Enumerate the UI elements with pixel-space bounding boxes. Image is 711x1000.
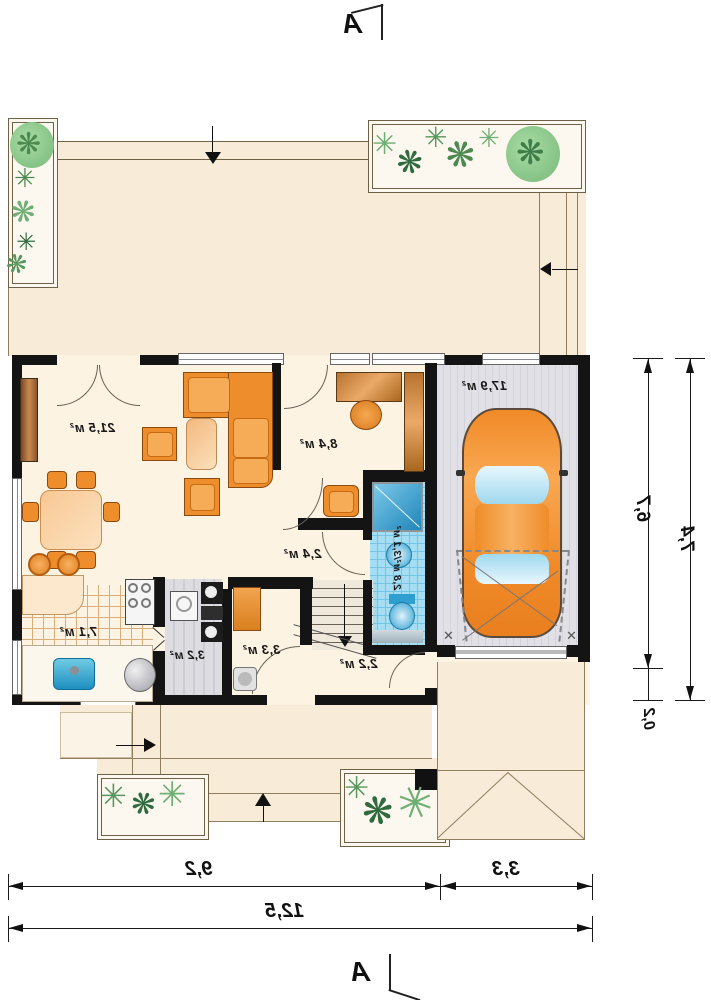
walkway-line [566,192,567,356]
entrance-arrow-line [263,804,264,822]
cross-mark-icon: ✕ [566,630,577,643]
boiler-dial-icon [205,586,217,598]
plant-icon: ✳ [372,130,397,160]
section-marker-bottom: A [350,956,370,988]
dining-chair [76,471,96,489]
plant-icon: ❋ [516,136,545,170]
dimension-arrow-icon [686,686,694,700]
side-path-arrow-line [116,745,144,746]
bar-counter [22,575,84,615]
dining-chair [22,502,39,522]
dimension-label-12-5: 12,5 [265,900,304,923]
canopy-roof-line [437,770,585,771]
dimension-arrow-icon [9,882,23,890]
plant-icon: ❋ [16,130,41,160]
walkway-arrow-icon [540,262,551,276]
porch-edge-line [60,758,432,759]
bar-stool [57,553,80,576]
section-line-bottom [389,954,391,990]
room-label-living: 21,5 м² [70,420,115,435]
dimension-label-0-2: 0,2 [639,699,657,739]
burner-icon [128,583,138,593]
dimension-arrow-icon [9,924,23,932]
floor-plan: A ❋ ✳ ❋ ✳ ❋ ✳ ❋ ✳ ❋ ✳ ❋ [0,0,711,1000]
room-label-entry: 2,2 м² [340,656,377,671]
wall-segment [363,580,372,645]
room-label-wc: 3,3 м² [243,642,280,657]
plant-icon: ✳ [14,166,36,192]
cross-mark-icon: ✕ [443,630,454,643]
water-heater [124,658,156,692]
car-roof [475,504,549,554]
stairs-direction-line [344,584,345,636]
driveway [437,662,585,840]
dining-chair [47,471,67,489]
room-label-hall: 2,4 м² [284,546,321,561]
desk [336,372,402,402]
sofa-cushion [188,377,230,413]
dimension-tick [440,874,441,900]
dimension-arrow-icon [644,654,652,668]
armchair-cushion [147,432,173,457]
front-walkway [207,793,340,822]
section-line-bottom-diag [388,989,420,1000]
dimension-arrow-icon [644,359,652,373]
plant-icon: ✳ [100,780,127,812]
wall-segment [272,363,281,470]
wardrobe [20,378,38,462]
window [482,353,540,365]
wall-segment [578,355,590,662]
garage-door-swing-line [456,550,568,552]
car-mirror-icon [559,470,568,476]
dimension-tick [633,668,663,669]
sofa-cushion [233,458,269,484]
terrace-entry-arrow-icon [205,152,221,164]
window [12,640,22,695]
burner-icon [128,598,138,608]
armchair-cushion [329,491,354,513]
section-marker-top: A [342,8,362,40]
dining-table [40,490,102,550]
coffee-table [186,418,217,470]
boiler-dial-icon [205,626,217,638]
washer-drum-icon [176,596,192,612]
dimension-label-7-4: 7,4 [675,517,697,561]
wall-segment [567,645,590,657]
dimension-tick [592,916,593,942]
section-line-top [381,4,383,40]
plant-icon: ✳ [158,778,187,812]
dimension-label-6-7: 6,7 [631,487,653,531]
window [12,478,22,590]
desk-return [404,372,424,472]
sofa-cushion [233,418,269,458]
dining-chair [103,502,120,522]
room-label-office: 8,4 м² [300,436,337,451]
dimension-arrow-icon [686,359,694,373]
boiler [201,606,223,620]
dimension-tick [592,874,593,900]
car-rear-window [475,554,549,584]
burner-icon [141,583,151,593]
dimension-arrow-icon [425,882,439,890]
entrance-arrow-icon [255,793,271,806]
room-label-garage: 17,9 м² [462,378,507,393]
wall-segment [425,688,437,705]
wall-segment [425,363,437,652]
wall-segment [437,645,455,657]
window [330,353,370,365]
cabinet [233,587,261,631]
burner-icon [141,598,151,608]
dimension-arrow-icon [442,882,456,890]
wall-segment [363,470,437,482]
wall-segment [222,589,232,695]
desk-chair [350,400,382,430]
pouf-cushion [190,484,215,511]
dimension-tick [675,700,705,701]
plant-icon: ✳ [478,126,500,152]
room-label-kitchen: 7,1 м² [60,624,97,639]
dimension-line [8,928,592,929]
dimension-label-9-2: 9,2 [185,858,213,881]
bar-stool [28,553,51,576]
room-label-bathroom: 2,8 м²/3,1 м² [391,513,403,603]
walkway-arrow-line [552,269,578,270]
terrace-step-mark-line [212,126,213,152]
dimension-arrow-icon [577,924,591,932]
dimension-label-3-3: 3,3 [492,858,520,881]
wall-segment [12,590,22,640]
side-path-arrow-icon [144,738,156,752]
wall-segment [300,589,312,645]
room-label-utility: 3,2 м² [170,648,205,662]
faucet-icon [70,666,79,675]
toilet-bowl [389,602,415,630]
washbasin-bowl-icon [238,672,252,686]
wall-segment [445,355,482,365]
bathroom-step [372,630,423,643]
car-windshield [475,466,549,504]
wall-segment [140,355,178,365]
car-mirror-icon [456,470,465,476]
wall-segment [298,518,372,530]
dimension-arrow-icon [577,882,591,890]
dimension-line [8,886,592,887]
wall-segment [315,695,432,705]
walkway-line [577,192,578,356]
porch-step [60,712,132,758]
window [178,353,284,365]
garage-door [455,646,567,659]
